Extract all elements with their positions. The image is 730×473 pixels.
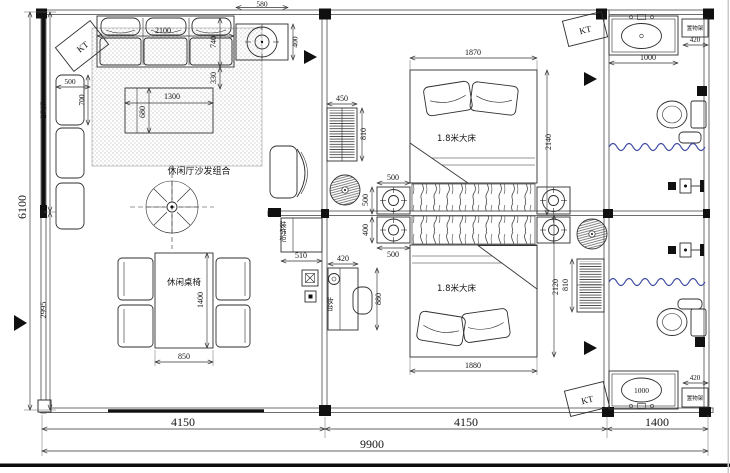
deco-cabinet-label: 装饰柜	[279, 220, 287, 243]
shower-screen-wave	[609, 144, 705, 151]
dim-shelf2-w: 420	[690, 374, 701, 382]
dim-bed2-l: 2120	[551, 279, 560, 295]
dim-vanity1-w: 1000	[640, 53, 656, 62]
dim-dresser-h: 880	[374, 293, 383, 305]
floor-plan-sheet: 休闲厅沙发组合 2100 740 330 580 400 KT 500 700 …	[0, 0, 730, 473]
dimension-chain-left: 6100 2767 2995	[15, 12, 56, 410]
dining-table	[118, 253, 250, 348]
shelf2-label: 置物架	[687, 394, 704, 402]
toilet-icon	[657, 299, 706, 336]
dresser	[328, 268, 372, 330]
vanity2-size-label: 1000	[634, 386, 649, 395]
deco-cabinet	[281, 218, 322, 252]
view-marker-icon	[14, 315, 27, 331]
view-marker-icon	[304, 50, 317, 64]
dim-sofa-depth: 740	[209, 36, 218, 48]
dim-wardrobe2-h: 810	[561, 279, 570, 291]
wardrobe-bedroom2	[577, 259, 604, 312]
bath-mat	[678, 299, 702, 309]
dim-sofa-front: 330	[209, 72, 218, 84]
dim-left-total: 6100	[15, 195, 29, 219]
wardrobe-bedroom1	[327, 108, 357, 161]
view-marker-icon	[584, 341, 597, 355]
wall-fixture	[697, 86, 707, 96]
dim-side-w: 500	[64, 77, 76, 86]
dim-left-seg2: 2995	[38, 302, 48, 319]
dim-bed1-l: 2140	[544, 134, 553, 150]
bed2-label: 1.8米大床	[437, 283, 477, 294]
bed2-head-drape	[412, 216, 535, 244]
shelf1-label: 置物架	[687, 24, 704, 32]
dim-bottom-total: 9900	[360, 437, 384, 451]
dining-label: 休闲桌椅	[167, 277, 202, 288]
dim-fc2-h: 400	[361, 224, 370, 236]
shower-icon	[668, 179, 704, 193]
dimension-chain-bottom: 4150 4150 1400 9900	[42, 415, 708, 456]
stool	[353, 287, 372, 314]
sheet-border-bottom	[0, 464, 730, 468]
bath-mat	[679, 132, 701, 143]
vanity-sink-1	[609, 15, 678, 56]
dim-shelf1-w: 420	[690, 36, 701, 44]
dim-fc1-w: 500	[387, 173, 399, 182]
switch-icon	[302, 270, 318, 302]
dim-fancoil-h: 400	[291, 36, 300, 48]
toilet-icon	[657, 101, 706, 143]
armchair	[270, 146, 308, 198]
dim-dresser-w: 420	[337, 254, 349, 263]
dim-sofa-width: 2100	[155, 26, 171, 35]
fan-coil-icon	[377, 217, 410, 243]
dim-dining-w: 850	[178, 352, 190, 361]
dim-bottom-seg1: 4150	[171, 415, 195, 429]
floor-plan-drawing: 休闲厅沙发组合 2100 740 330 580 400 KT 500 700 …	[0, 0, 730, 473]
fan-coil-icon	[537, 217, 570, 243]
sheet-border-right	[728, 0, 730, 473]
dresser-label: 妆台	[326, 296, 334, 312]
shower-screen-wave	[609, 279, 705, 286]
wall-fixture	[695, 337, 705, 347]
rug-label: 休闲厅沙发组合	[167, 165, 230, 177]
dim-coffee-h: 680	[138, 106, 147, 118]
shower-icon	[668, 243, 704, 257]
dim-bottom-seg2: 4150	[454, 415, 478, 429]
dim-dining-l: 1400	[196, 292, 205, 308]
exhaust-fan-icon	[577, 219, 607, 249]
dim-fancoil-w: 580	[256, 0, 268, 9]
dim-fc2-w: 500	[387, 250, 399, 259]
dim-wardrobe1-w: 450	[336, 94, 348, 103]
dim-cabinet-w: 510	[295, 251, 307, 260]
south-window-band	[108, 409, 264, 412]
fan-coil-icon	[377, 187, 410, 214]
dim-bottom-seg3: 1400	[645, 415, 669, 429]
bed1-foot-drape	[412, 184, 535, 211]
dim-side-h: 700	[77, 94, 86, 106]
exhaust-fan-icon	[330, 175, 360, 205]
bed1-label: 1.8米大床	[437, 133, 477, 144]
kt-text: KT	[75, 39, 91, 55]
dim-bed2-w: 1880	[465, 361, 481, 370]
dim-wardrobe1-h: 810	[359, 128, 368, 140]
fan-coil-icon	[537, 187, 570, 214]
dim-bed1-w: 1870	[465, 48, 481, 57]
ceiling-fan-icon	[130, 165, 214, 249]
view-marker-icon	[584, 72, 597, 86]
dim-left-seg1: 2767	[38, 102, 48, 119]
kt-text: KT	[580, 394, 595, 407]
kt-text: KT	[578, 24, 593, 37]
dim-coffee-w: 1300	[164, 92, 180, 101]
dim-fc1-h: 500	[361, 194, 370, 206]
